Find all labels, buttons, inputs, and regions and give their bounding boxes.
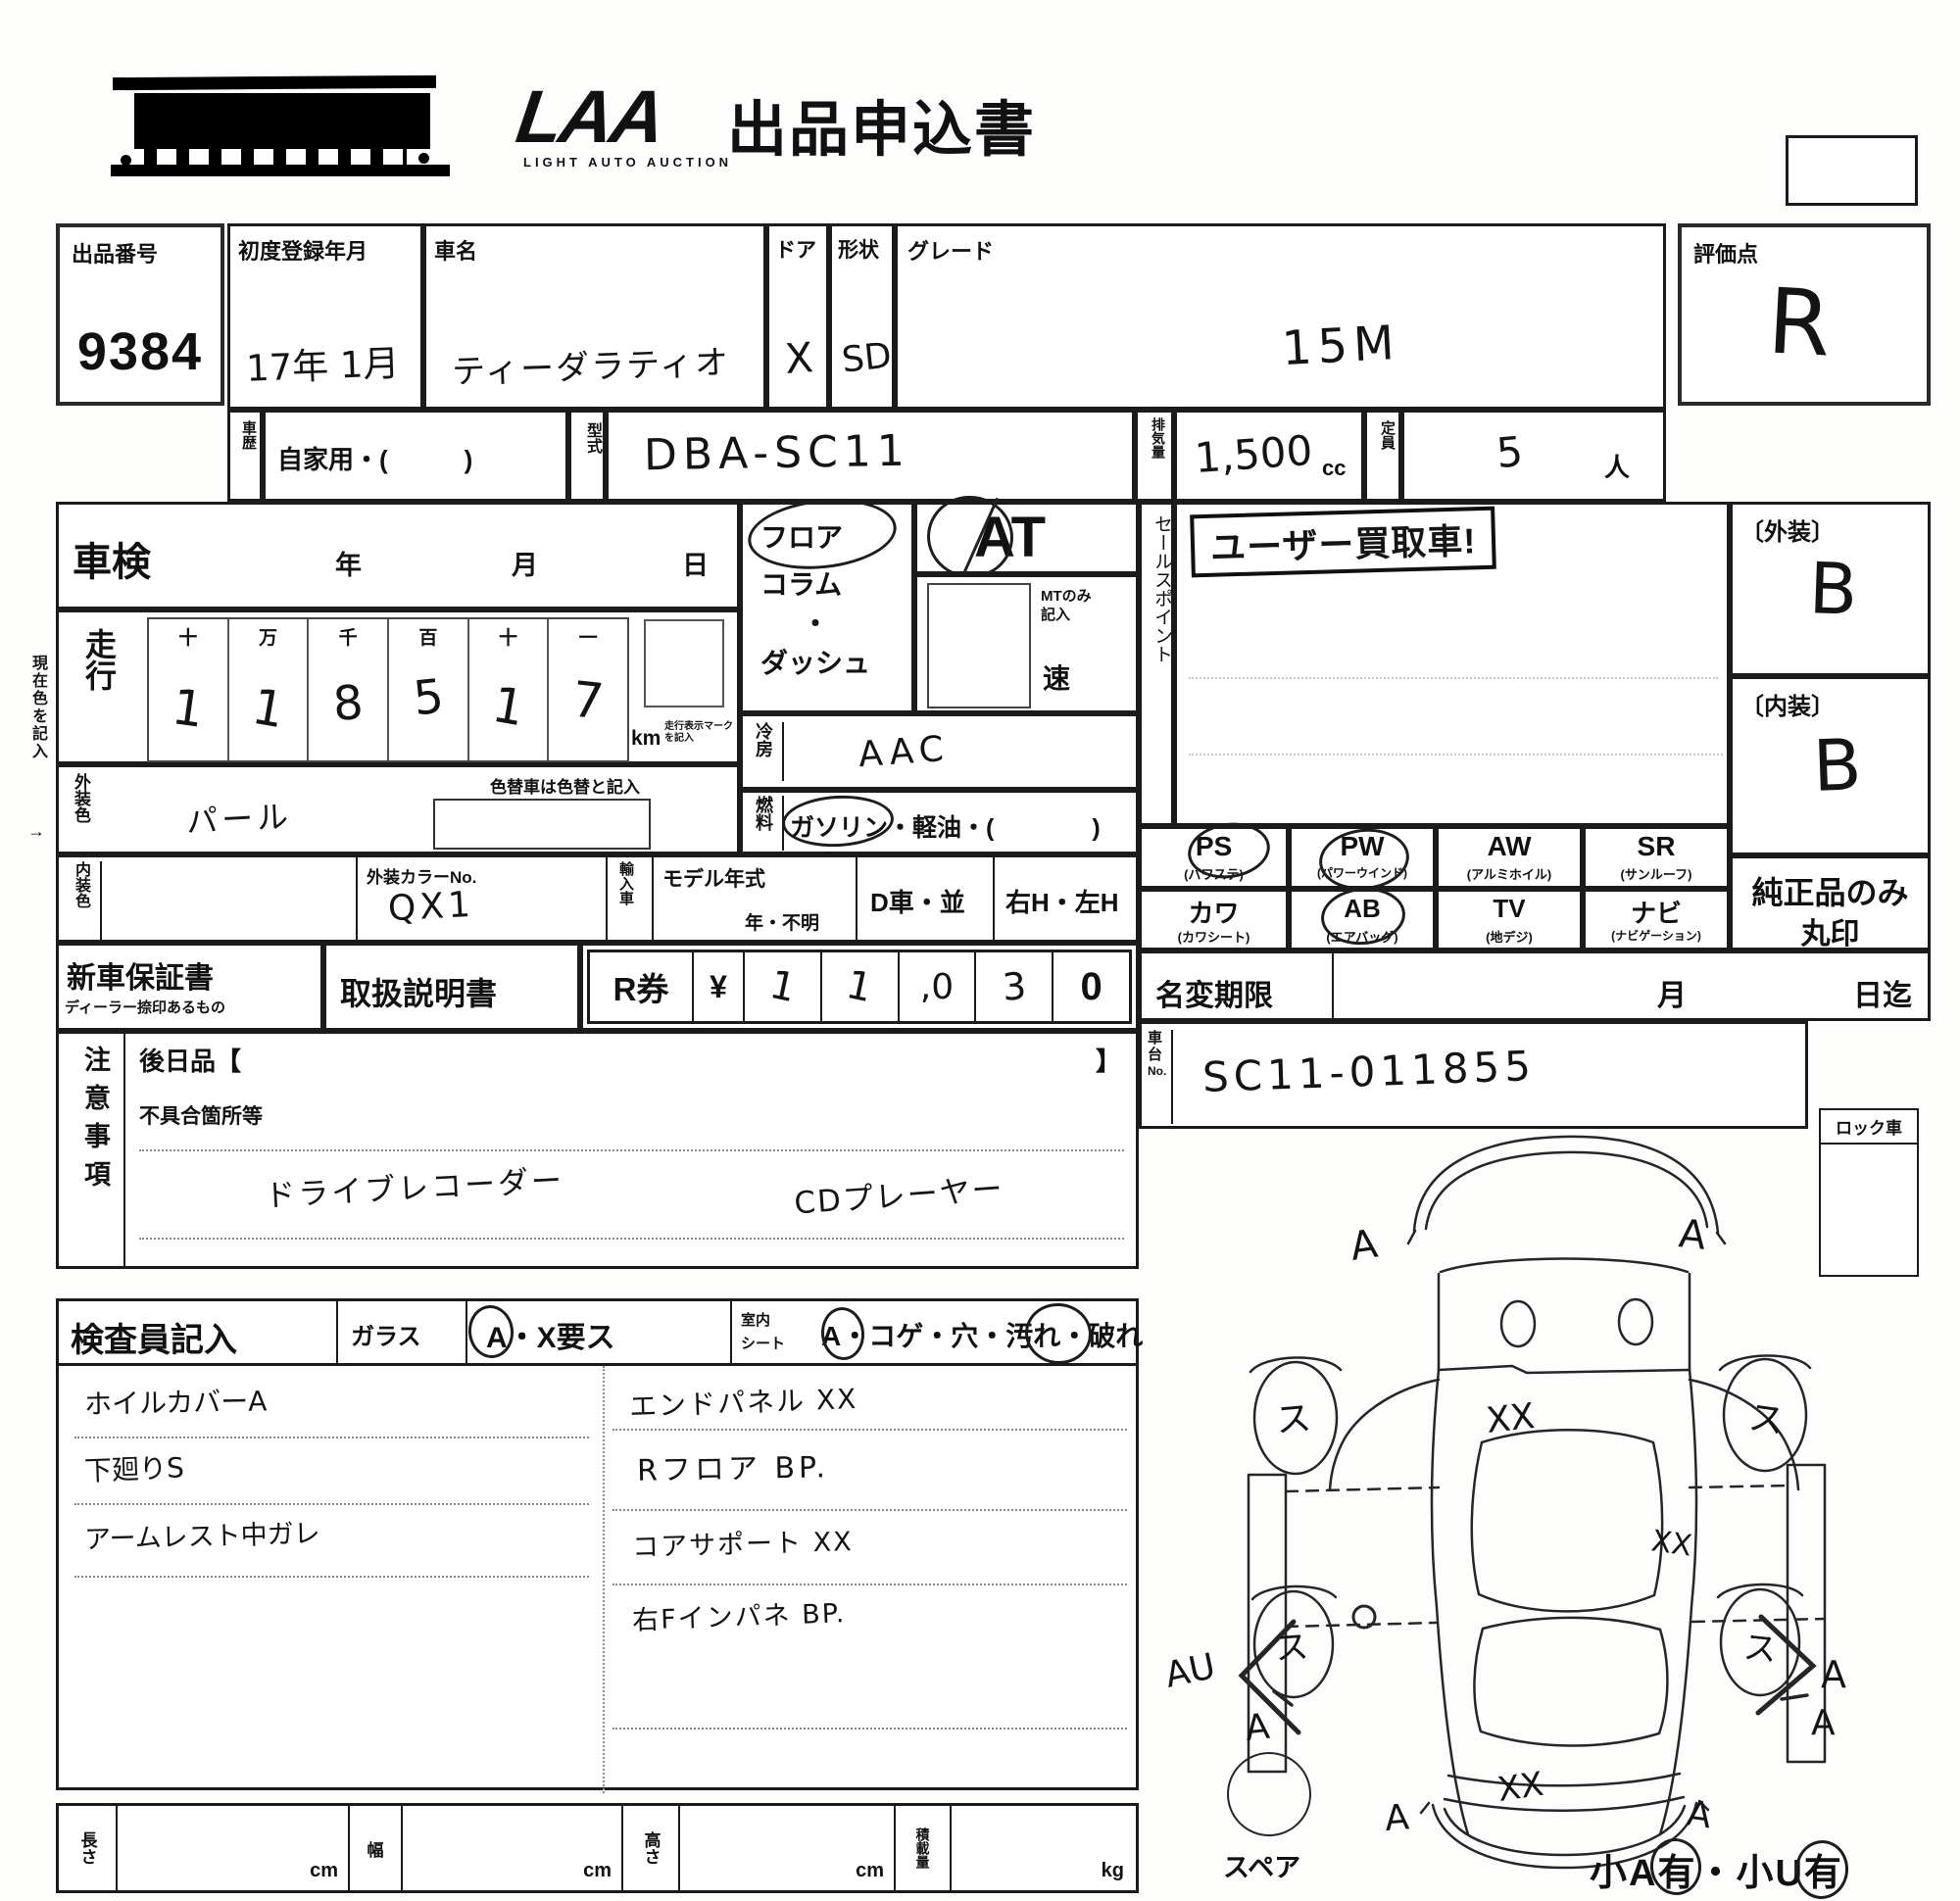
diagram-handwritten-marks: A A XX XX ス ス ス ス AU A A A XX A A [1161,1211,1846,1839]
mileage-col: 十 1 [149,619,229,760]
interior-rating-box: 〔内装〕 B [1730,676,1931,855]
warranty-sub: ディーラー捺印あるもの [65,997,225,1017]
genuine-parts-box: 純正品のみ 丸印 [1730,855,1931,950]
front-fender-left [1330,1380,1439,1489]
door-cell: ドア X [766,223,829,410]
salespoint-label-cell: セールスポイント [1139,502,1174,826]
first-registration-label: 初度登録年月 [238,234,367,266]
shift-column: コラム [760,563,842,603]
rticket-digit: 1 [765,962,799,1011]
interior-rating-label: 〔内装〕 [1740,687,1835,721]
namechange-until: 日迄 [1853,971,1912,1014]
mark-trunk-xx: XX [1495,1765,1546,1810]
shift-dash: ダッシュ [760,642,870,681]
arch-front-left [1250,1357,1341,1372]
load-value-cell: kg [952,1806,1136,1890]
manual-label: 取扱説明書 [340,969,497,1014]
mileage-header: 万 [259,623,277,650]
mileage-header: 千 [339,623,358,650]
displacement-label-cell: 排気量 [1135,410,1174,502]
stamp-bar-top [113,75,436,90]
mileage-header: 十 [178,623,197,650]
mark-left-au: AU [1161,1646,1218,1696]
panel-bottom [1439,1366,1690,1373]
history-label-cell: 車歴 [227,410,263,502]
equip-kawa: カワ (カワシート) [1139,889,1289,950]
divider [652,857,654,940]
rear-window [1474,1618,1667,1746]
mileage-label: 走行 [76,628,122,691]
inspector-section: 検査員記入 ガラス A・X要ス 室内 シート A・コゲ・穴・汚れ・破れ ホイルカ… [56,1298,1139,1790]
rticket-label: R券 [613,963,669,1010]
namechange-month: 月 [1657,971,1687,1014]
aircon-value: AAC [857,729,951,775]
height-label-cell: 高さ [623,1806,680,1890]
genuine-parts-line1: 純正品のみ [1733,868,1928,913]
model-year-options: 年・不明 [745,908,819,935]
ruling-line [74,1437,589,1438]
later-items-close: 】 [1096,1042,1121,1078]
rticket-yen-cell: ¥ [694,952,745,1021]
divider [336,1301,338,1363]
height-label: 高さ [639,1831,663,1865]
width-label: 幅 [367,1836,384,1861]
equip-sr-code: SR [1586,831,1727,862]
rticket-digit-cell: 3 [976,952,1053,1021]
equip-sr: SR (サンルーフ) [1583,826,1730,889]
load-unit: kg [1102,1860,1124,1882]
divider [993,857,995,940]
equip-navi-code: ナビ [1586,894,1727,930]
length-label-cell: 長さ [59,1806,118,1890]
equip-tv-code: TV [1439,894,1580,924]
caution-note-2: CDプレーヤー [793,1164,1005,1223]
ruling-line [612,1728,1127,1730]
rticket-digit-cell: ,0 [900,952,977,1021]
rticket-digit: ,0 [920,967,954,1007]
chassis-label-1: 車 [1148,1030,1166,1047]
caution-section: 注意事項 後日品【 】 不具合箇所等 ドライブレコーダー CDプレーヤー [56,1031,1139,1269]
arch-rear-left [1252,1586,1336,1599]
mark-wheel-rl: ス [1274,1628,1310,1669]
displacement-value: 1,500 [1193,426,1313,482]
length-unit: cm [310,1860,338,1882]
car-name-cell: 車名 ティーダラティオ [423,223,766,410]
ruling-line [139,1238,1124,1240]
ruling-line [612,1429,1127,1431]
body-side-left [1432,1370,1468,1834]
namechange-row: 名変期限 月 日迄 [1139,950,1931,1021]
displacement-label: 排気量 [1149,417,1168,459]
mark-front-left-a: A [1347,1221,1381,1269]
mileage-digit: 1 [488,676,528,738]
caution-note-1: ドライブレコーダー [264,1155,565,1215]
cowl-curve [1441,1259,1688,1273]
inspector-note-left: 下廻りS [83,1446,184,1489]
shaken-year: 年 [335,544,362,582]
rticket-label-cell: R券 [590,952,694,1021]
mileage-col: 千 8 [309,619,389,760]
first-registration-value: 17年 1月 [245,333,400,391]
load-label: 積載量 [913,1828,933,1869]
user-buyback-stamp: ユーザー買取車! [1190,507,1496,578]
mark-front-right-a: A [1677,1211,1709,1259]
caution-label: 注意事項 [76,1046,115,1198]
mt-note: MTのみ 記入 [1041,587,1092,624]
width-unit: cm [583,1860,612,1882]
rticket-digit-cell: 0 [1053,952,1129,1021]
mt-note-1: MTのみ [1041,587,1092,606]
shaken-day: 日 [682,544,709,582]
mileage-col: 百 5 [389,619,469,760]
mark-wheel-rr: ス [1741,1628,1779,1670]
model-year-label: モデル年式 [662,863,765,893]
ext-color-no-label: 外装カラーNo. [367,863,476,888]
mileage-digit: 8 [331,675,365,732]
width-value-cell: cm [403,1806,623,1890]
interior-rating-value: B [1812,723,1863,807]
defect-label: 不具合箇所等 [139,1100,263,1130]
equip-kawa-code: カワ [1142,894,1286,930]
windshield [1472,1430,1662,1611]
mt-note-2: 記入 [1041,606,1092,624]
inspector-note-left: ホイルカバーA [84,1380,268,1422]
aircon-label: 冷房 [751,722,784,781]
divider [606,857,608,940]
chassis-value: SC11-011855 [1201,1042,1536,1101]
lot-number-box: 出品番号 9384 [56,223,224,406]
displacement-unit: cc [1322,456,1346,481]
rticket-digit-cell: 1 [745,952,822,1021]
mark-hood-xx: XX [1485,1396,1537,1441]
mark-rear-bumper-right-a: A [1685,1793,1714,1836]
width-label-cell: 幅 [350,1806,403,1890]
length-label: 長さ [75,1831,100,1865]
shape-label: 形状 [838,234,879,264]
ruling-line [74,1576,589,1578]
ext-color-row: 外装色 パール 色替車は色替と記入 [56,764,740,854]
capacity-label-cell: 定員 [1364,410,1401,502]
divider [465,1301,467,1363]
mileage-unit: km [631,727,661,751]
recolor-box [433,799,651,850]
equip-kawa-name: (カワシート) [1142,927,1286,946]
door-dot-mark [1353,1606,1375,1628]
mileage-digit: 5 [411,669,446,727]
genuine-parts-line2: 丸印 [1733,909,1928,952]
model-code-label-cell: 型式 [568,410,606,502]
caution-label-strip: 注意事項 [59,1034,125,1266]
mileage-col: 一 7 [549,619,627,760]
mileage-header: 十 [499,623,517,650]
equip-navi: ナビ (ナビゲーション) [1583,889,1730,950]
inspector-note-right: エンドパネル XX [628,1378,858,1425]
mileage-note-2: を記入 [664,733,733,745]
rticket-digit-printed: 0 [1080,965,1102,1009]
ruling-line [1189,677,1718,679]
mileage-digit: 1 [248,678,288,740]
rticket-inner: R券 ¥ 1 1 ,0 3 0 [587,950,1132,1024]
dimensions-row: 長さ cm 幅 cm 高さ cm 積載量 kg [56,1803,1139,1893]
washer-left [1501,1301,1535,1346]
stamp-bar-bottom [111,165,450,176]
capacity-value: 5 [1494,427,1525,477]
score-value: R [1765,268,1833,376]
warranty-label: 新車保証書 [67,953,214,997]
mileage-mark-box [644,619,724,707]
history-value: 自家用・( ) [277,440,472,476]
rticket-digit-cell: 1 [822,952,900,1021]
inspector-label: 検査員記入 [71,1313,237,1361]
equip-aw-code: AW [1439,831,1580,862]
mark-rear-left-a: A [1244,1707,1272,1749]
auction-sheet: { "header": { "logo": "LAA", "logo_sub":… [0,0,1960,1896]
current-color-note: 現在色を記入 [25,655,49,821]
exterior-rating-value: B [1808,547,1859,631]
door-value: X [783,333,814,383]
equip-tv: TV (地デジ) [1436,889,1583,950]
inspector-note-left: アームレスト中ガレ [84,1512,321,1556]
mileage-header: 百 [418,623,437,650]
rear-deck-line [1448,1774,1680,1785]
redacted-stamp [103,69,456,178]
mileage-unit-note: 走行表示マーク を記入 [664,721,733,745]
arch-front-right [1720,1355,1810,1370]
shape-cell: 形状 SD [829,223,895,410]
rticket-area: R券 ¥ 1 1 ,0 3 0 [580,943,1139,1031]
user-buyback-stamp-text: ユーザー買取車! [1209,512,1477,571]
shape-value: SD [840,335,894,380]
spare-label: スペア [1223,1846,1300,1884]
top-right-box [1786,135,1918,206]
shift-dot: ・ [802,603,829,642]
yen-sign: ¥ [710,969,727,1005]
ruling-line [612,1509,1127,1511]
mt-speed: 速 [1043,658,1070,697]
cutline-rear [1286,1619,1825,1627]
import-label: 輸入車 [615,861,636,905]
capacity-unit: 人 [1604,448,1630,484]
model-code-cell: DBA-SC11 [606,410,1135,502]
bumper-end [1717,1233,1725,1243]
handle-options: 右H・左H [1005,883,1119,919]
car-name-label: 車名 [434,234,477,266]
shaken-month: 月 [512,544,538,582]
lot-number-label: 出品番号 [72,237,158,268]
shaken-cell: 車検 年 月 日 [56,502,740,609]
height-value-cell: cm [680,1806,896,1890]
salespoint-area: ユーザー買取車! [1174,502,1730,826]
inspector-column-divider [603,1366,605,1793]
stamp-block [134,93,430,149]
mark-rear-bumper-left-a: A [1384,1797,1411,1839]
chassis-label-2: 台 [1148,1047,1166,1063]
cutline-front [1286,1486,1788,1491]
load-label-cell: 積載量 [896,1806,952,1890]
seat-label: シート [741,1333,785,1356]
exterior-rating-box: 〔外装〕 B [1730,502,1931,676]
bumper-end [1408,1231,1415,1243]
spare-tire-circle [1227,1752,1311,1836]
equip-aw: AW (アルミホイル) [1436,826,1583,889]
mileage-col: 十 1 [469,619,550,760]
namechange-divider [1332,953,1334,1018]
height-unit: cm [856,1860,884,1882]
later-items-label: 後日品【 [139,1042,241,1078]
capacity-label: 定員 [1377,420,1397,450]
score-box: 評価点 R [1678,223,1931,406]
divider [856,857,857,940]
equip-sr-name: (サンルーフ) [1586,864,1727,883]
equip-navi-name: (ナビゲーション) [1586,927,1727,944]
front-bumper-inner [1426,1152,1707,1229]
history-cell: 自家用・( ) [263,410,568,502]
car-name-value: ティーダラティオ [451,335,730,393]
mileage-grid: 十 1 万 1 千 8 百 5 十 1 一 7 [147,617,629,762]
mt-box [927,583,1031,708]
equip-aw-name: (アルミホイル) [1439,864,1580,883]
salespoint-label: セールスポイント [1149,514,1175,663]
warranty-cell: 新車保証書 ディーラー捺印あるもの [56,943,323,1031]
equip-tv-name: (地デジ) [1439,927,1580,946]
length-value-cell: cm [118,1806,350,1890]
manual-cell: 取扱説明書 [323,943,580,1031]
stamp-dot-right [418,153,429,164]
cabin-label: 室内 [741,1309,785,1333]
first-registration-cell: 初度登録年月 17年 1月 [227,223,423,410]
chassis-label-3: No. [1148,1063,1166,1080]
fuel-label: 燃料 [751,796,784,851]
displacement-cell: 1,500 cc [1174,410,1364,502]
recolor-note: 色替車は色替と記入 [490,773,640,798]
mark-wheel-fl: ス [1274,1398,1312,1441]
score-label: 評価点 [1693,237,1758,268]
inspector-note-right: コアサポート XX [632,1520,855,1564]
body-side-right [1660,1370,1696,1834]
chassis-label: 車 台 No. [1148,1030,1173,1124]
ext-color-value: パール [185,792,293,843]
lot-number-value: 9384 [60,321,220,382]
ext-color-label: 外装色 [69,773,93,823]
aircon-row: 冷房 AAC [740,713,1139,790]
a-tick [1274,1691,1807,1705]
int-color-label: 内装色 [69,861,102,940]
inspector-note-right: 右Fインパネ BP. [631,1591,847,1637]
model-code-value: DBA-SC11 [644,426,911,481]
inspector-note-right: Rフロア BP. [637,1442,830,1488]
rear-deck-line [1445,1797,1684,1811]
front-bumper-outer [1414,1137,1718,1233]
model-code-label: 型式 [580,422,604,454]
divider [730,1301,732,1363]
namechange-label: 名変期限 [1155,971,1273,1014]
mark-right-a: A [1821,1653,1846,1696]
mark-wheel-fr: ス [1746,1397,1787,1442]
ruling-line [139,1149,1124,1151]
mileage-note-1: 走行表示マーク [664,721,733,733]
mileage-col: 万 1 [229,619,310,760]
exterior-rating-label: 〔外装〕 [1740,512,1835,547]
cabin-seat-label: 室内 シート [741,1309,785,1356]
capacity-cell: 5 人 [1401,410,1666,502]
mt-cell: MTのみ 記入 速 [914,574,1139,713]
mileage-digit: 7 [569,670,607,730]
ruling-line [1189,754,1723,756]
grade-cell: グレード 15M [895,223,1666,410]
seat-options: A・コゲ・穴・汚れ・破れ [821,1315,1143,1354]
dcar-options: D車・並 [870,883,965,919]
ruling-line [74,1503,589,1505]
rticket-digit: 3 [1001,964,1027,1009]
page-title: 出品申込書 [727,80,1036,168]
laa-logo: LAA [512,74,667,160]
rticket-digit: 1 [843,962,876,1011]
grade-value: 15M [1281,316,1401,376]
glass-label: ガラス [351,1317,421,1351]
chassis-row: 車 台 No. SC11-011855 [1139,1021,1808,1129]
shaken-label: 車検 [73,530,151,587]
current-color-arrow: → [27,821,45,842]
washer-right [1619,1299,1652,1344]
history-label: 車歴 [238,420,259,450]
door-label: ドア [775,234,816,264]
divider [356,857,358,940]
inspector-header: 検査員記入 ガラス A・X要ス 室内 シート A・コゲ・穴・汚れ・破れ [59,1301,1136,1366]
mileage-header: 一 [579,623,598,650]
mark-side-xx: XX [1649,1524,1694,1563]
ext-color-no-value: QX1 [387,885,475,930]
laa-logo-subtitle: LIGHT AUTO AUCTION [523,155,732,170]
mileage-digit: 1 [169,678,208,739]
arch-rear-right [1718,1584,1802,1597]
grade-label: グレード [907,234,994,266]
int-color-row: 内装色 外装カラーNo. QX1 輸入車 モデル年式 年・不明 D車・並 右H・… [56,854,1139,943]
ruling-line [612,1584,1127,1585]
mark-rear-right-a: A [1811,1703,1836,1743]
